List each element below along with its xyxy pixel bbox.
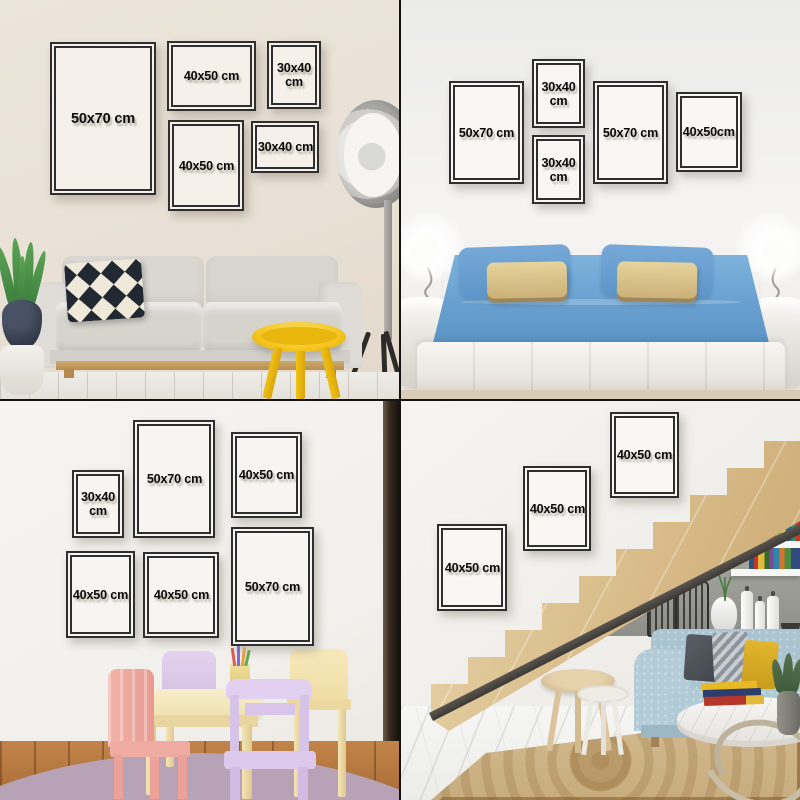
frame-size-label: 40x50 cm — [615, 448, 674, 462]
frame-size-label: 40x50 cm — [182, 69, 241, 83]
frame-size-label: 40x50 cm — [151, 588, 210, 602]
bookshelf — [731, 569, 800, 576]
frame-40x50: 40x50 cm — [66, 551, 135, 638]
quadrant-stairway: 40x50 cm 40x50 cm 40x50 cm — [401, 401, 800, 800]
frame-size-label: 30x40 cm — [535, 80, 583, 107]
frame-50x70: 50x70 cm — [231, 527, 314, 646]
dark-wall-edge — [383, 401, 399, 775]
lavender-chair-leg — [230, 767, 240, 800]
frame-30x40: 30x40 cm — [532, 59, 585, 128]
frame-size-label: 40x50 cm — [442, 561, 501, 575]
candle — [767, 596, 779, 633]
candle — [741, 591, 753, 633]
yellow-stool-bowl — [261, 327, 337, 345]
candle-knob — [758, 596, 762, 601]
frame-size-label: 30x40 cm — [75, 490, 122, 517]
tan-pillow — [487, 261, 568, 302]
studio-lamp-pole — [384, 200, 392, 340]
frame-40x50: 40x50 cm — [437, 524, 507, 611]
frame-40x50: 40x50 cm — [610, 412, 679, 498]
frame-50x70: 50x70 cm — [50, 42, 156, 195]
frame-40x50: 40x50 cm — [523, 466, 591, 551]
frame-50x70: 50x70 cm — [593, 81, 668, 184]
frame-40x50: 40x50 cm — [168, 120, 244, 211]
frame-30x40: 30x40 cm — [532, 135, 585, 204]
frame-size-label: 50x70 cm — [243, 580, 302, 594]
lavender-chair-post — [300, 695, 309, 755]
yellow-chair-leg — [338, 709, 346, 797]
triangle-pattern-pillow — [64, 258, 145, 322]
sofa-leg — [64, 369, 74, 378]
plant-pot — [2, 300, 42, 350]
frame-size-label: 50x70 cm — [144, 472, 203, 486]
frame-size-label: 30x40 cm — [535, 156, 583, 183]
frame-size-label: 40x50 cm — [237, 468, 296, 482]
sofa-wood-leg — [651, 737, 659, 747]
pencil — [237, 646, 240, 666]
wood-stool-leg — [575, 691, 581, 753]
pink-chair-leg — [178, 755, 187, 799]
frame-size-label: 50x70 cm — [69, 111, 137, 127]
tan-pillow — [617, 261, 698, 302]
lavender-chair-leg — [298, 767, 308, 800]
quadrant-kids-room: 30x40 cm 50x70 cm 40x50 cm 40x50 cm 40x5… — [0, 401, 399, 800]
lamp-shade — [410, 233, 440, 268]
corner-plant-vase — [777, 691, 800, 735]
frame-size-label: 40x50 cm — [527, 502, 586, 516]
bed-platform — [417, 342, 785, 392]
candle-knob — [745, 586, 749, 591]
frame-size-label: 40x50cm — [681, 125, 737, 139]
frame-40x50: 40x50 cm — [167, 41, 256, 111]
pink-chair-back — [108, 669, 154, 747]
lamp-shade — [762, 233, 792, 268]
pink-chair-leg — [150, 757, 159, 799]
frame-50x70: 50x70 cm — [133, 420, 215, 538]
frame-size-label: 50x70 cm — [457, 126, 516, 140]
studio-lamp-diffuser — [344, 113, 399, 197]
frame-size-label: 40x50 cm — [176, 159, 235, 173]
quadrant-living-room: 50x70 cm 40x50 cm 30x40 cm 40x50 cm 30x4… — [0, 0, 399, 399]
frame-30x40: 30x40 cm — [267, 41, 321, 109]
mockup-collage: 50x70 cm 40x50 cm 30x40 cm 40x50 cm 30x4… — [0, 0, 800, 800]
frame-40x50: 40x50cm — [676, 92, 742, 172]
quadrant-bedroom: 50x70 cm 30x40 cm 30x40 cm 50x70 cm 40x5… — [401, 0, 800, 399]
frame-30x40: 30x40 cm — [72, 470, 124, 538]
planter-base — [0, 345, 44, 395]
frame-30x40: 30x40 cm — [251, 121, 319, 173]
round-vase — [711, 597, 737, 633]
vase-sprig — [715, 573, 735, 601]
kids-table-apron — [142, 715, 258, 727]
yellow-stool-leg — [296, 351, 305, 399]
frame-size-label: 40x50 cm — [71, 588, 130, 602]
lavender-chair-slat — [245, 703, 295, 715]
candle-knob — [771, 591, 775, 596]
frame-size-label: 50x70 cm — [601, 126, 660, 140]
frame-size-label: 30x40 cm — [255, 140, 314, 154]
bedroom-floor — [401, 390, 800, 399]
lavender-chair-post — [230, 695, 239, 755]
frame-40x50: 40x50 cm — [143, 552, 219, 638]
frame-size-label: 30x40 cm — [270, 61, 319, 88]
frame-40x50: 40x50 cm — [231, 432, 302, 518]
pink-chair-leg — [114, 755, 123, 799]
frame-50x70: 50x70 cm — [449, 81, 524, 184]
white-stool-leg — [601, 701, 606, 755]
